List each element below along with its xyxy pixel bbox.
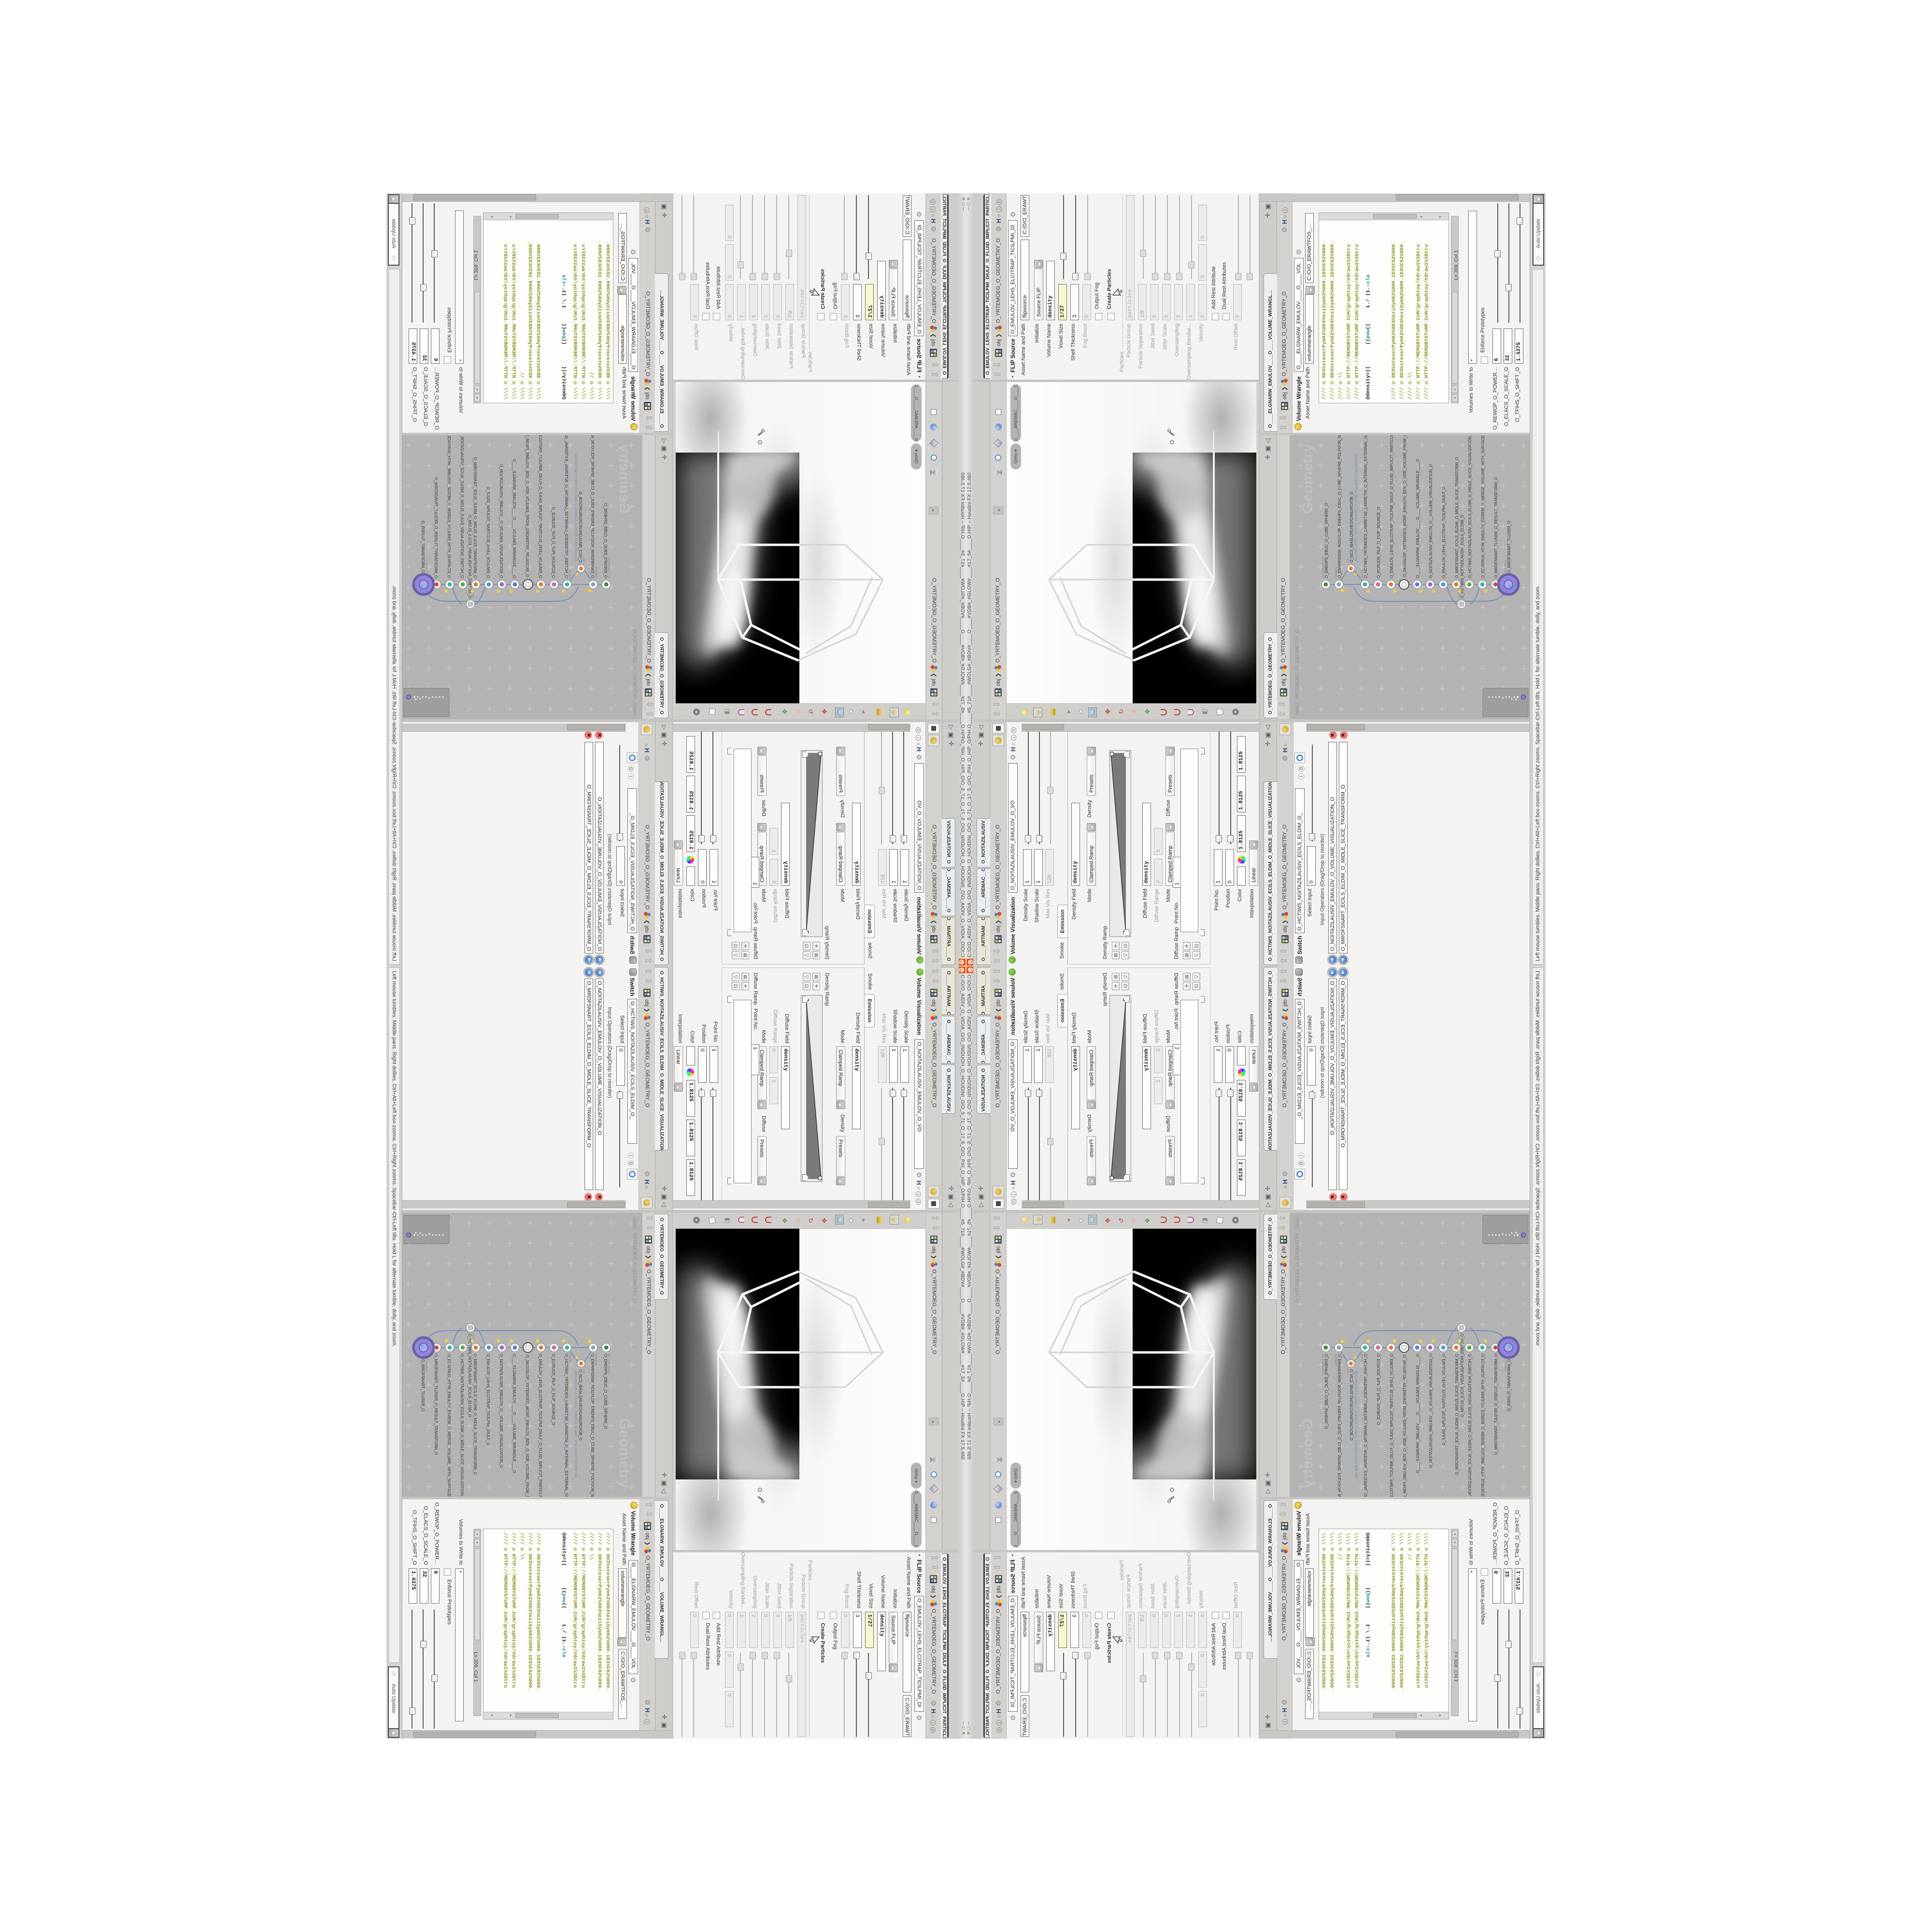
svg-text:Geometry: Geometry xyxy=(616,443,633,513)
svg-text:O_MROFSNART_TLUSER_O: O_MROFSNART_TLUSER_O xyxy=(421,521,425,573)
svg-text:O_MROFSNART_ECILS_ELDIM_O_MIDL: O_MROFSNART_ECILS_ELDIM_O_MIDLE_SLICE_TR… xyxy=(473,457,477,578)
svg-text:O_ECAFRUS_HTIW_EMULOV_EGREM_O_: O_ECAFRUS_HTIW_EMULOV_EGREM_O_MERGE_VOLU… xyxy=(447,1354,451,1497)
svg-text:O_HCTIWS_NOITAZILAUSIV_ECILS_E: O_HCTIWS_NOITAZILAUSIV_ECILS_ELDIM_O xyxy=(1460,515,1464,598)
svg-text:_BDO.WD3.PETS.TROP1.0_SGNREG_O: _BDO.WD3.PETS.TROP1.0_SGNREG_O.GENF_O.SL… xyxy=(574,452,577,563)
svg-text:O_EMULOV_LEHS_ELCITRAP_TICILPM: O_EMULOV_LEHS_ELCITRAP_TICILPMI_DIULF_O_… xyxy=(1390,1354,1394,1497)
svg-text:O_HCTIWS_YRTEMOEG_LANRETXE_LAN: O_HCTIWS_YRTEMOEG_LANRETXE_LANRETNI_O_IN… xyxy=(1364,435,1368,578)
svg-text:O_EREHPS_EBUC_O_CUBE_SPHERE_O: O_EREHPS_EBUC_O_CUBE_SPHERE_O xyxy=(1324,503,1329,578)
svg-text:O_EMULOV_LEHS_ELCITRAP_TICILPM: O_EMULOV_LEHS_ELCITRAP_TICILPMI_DIULF_O_… xyxy=(538,1354,542,1497)
svg-text:O_NOITAZILAUSIV_EMULOV_O__VOLU: O_NOITAZILAUSIV_EMULOV_O__VOLUME_VISUALI… xyxy=(1429,464,1433,578)
svg-text:O_HCTIWS_NOITAZILAUSIV_ECILS_E: O_HCTIWS_NOITAZILAUSIV_ECILS_ELDIM_O_MID… xyxy=(460,1354,464,1497)
svg-text:O_EREHPS_EBUC_O_CUBE_SPHERE_O: O_EREHPS_EBUC_O_CUBE_SPHERE_O xyxy=(603,503,608,578)
svg-text:O_HCTIWS_NOITAZILAUSIV_ECILS_E: O_HCTIWS_NOITAZILAUSIV_ECILS_ELDIM_O xyxy=(468,1334,472,1417)
svg-text:O_ECAFRUS_HTIW_EMULOV_EGREM_O_: O_ECAFRUS_HTIW_EMULOV_EGREM_O_MERGE_VOLU… xyxy=(1481,1354,1485,1497)
svg-text:O____ELGNARW_EMULOV____O____VO: O____ELGNARW_EMULOV____O____VOLUME_WRANG… xyxy=(1416,1354,1420,1473)
svg-text:O_HCTIWS_YRTEMOEG_LANRETXE_LAN: O_HCTIWS_YRTEMOEG_LANRETXE_LANRETNI_O_IN… xyxy=(564,1354,568,1497)
svg-text:O_HCTIWS_NOITAZILAUSIV_ECILS_E: O_HCTIWS_NOITAZILAUSIV_ECILS_ELDIM_O_MID… xyxy=(1468,1354,1472,1497)
svg-text:O_NC3_/BASLQRU/EO/GANJ/RO/OB_D: O_NC3_/BASLQRU/EO/GANJ/RO/OB_D xyxy=(578,492,582,563)
svg-text:O_NC3_/BASLQRU/EO/GANJ/RO/OB_D: O_NC3_/BASLQRU/EO/GANJ/RO/OB_D xyxy=(1350,1369,1354,1440)
svg-text:O_SKOGILOP_YRTEMOEG_MORF_EMULO: O_SKOGILOP_YRTEMOEG_MORF_EMULOV_BDV_O_VD… xyxy=(525,1355,529,1497)
svg-text:O_NOITAZILAUSIV_EMULOV_O__VOLU: O_NOITAZILAUSIV_EMULOV_O__VOLUME_VISUALI… xyxy=(499,1354,503,1468)
svg-text:O_NC3_/BASLQRU/EO/GANJ/RO/OB_D: O_NC3_/BASLQRU/EO/GANJ/RO/OB_D xyxy=(578,1369,582,1440)
svg-text:O_EMULOV_LEHS_ELCITRAP_TICILPM: O_EMULOV_LEHS_ELCITRAP_TICILPMI_DIULF_O_… xyxy=(538,435,542,578)
svg-text:O_ECRUOS_PILF_O_FLIP_SOURCE_O: O_ECRUOS_PILF_O_FLIP_SOURCE_O xyxy=(551,507,555,578)
svg-text:_BDO.WD3.PETS.TROP1.0_SGNREG_O: _BDO.WD3.PETS.TROP1.0_SGNREG_O.GENF_O.SL… xyxy=(1355,1369,1358,1480)
svg-text:/obj/O_YRTEMOEG_O_GEOMETRY_O: /obj/O_YRTEMOEG_O_GEOMETRY_O xyxy=(1295,1216,1300,1303)
svg-text:O_ECAFRUS_HTIW_EMULOV_EGREM_O_: O_ECAFRUS_HTIW_EMULOV_EGREM_O_MERGE_VOLU… xyxy=(447,435,451,578)
svg-text:/obj/O_YRTEMOEG_O_GEOMETRY_O: /obj/O_YRTEMOEG_O_GEOMETRY_O xyxy=(632,1216,637,1303)
svg-text:Geometry: Geometry xyxy=(1299,1418,1316,1488)
svg-text:O_EREHPS_EBUC_O_CUBE_SPHERE_O: O_EREHPS_EBUC_O_CUBE_SPHERE_O xyxy=(603,1354,608,1429)
svg-text:O_MROFSNART_TLUSER_O_RESULT_TR: O_MROFSNART_TLUSER_O_RESULT_TRANSFORM_O xyxy=(1494,477,1498,578)
svg-text:O_HCTIWS_NOITAZILAUSIV_ECILS_E: O_HCTIWS_NOITAZILAUSIV_ECILS_ELDIM_O xyxy=(1460,1334,1464,1417)
svg-text:O_HCTIWS_YRTEMOEG_LANRETXE_LAN: O_HCTIWS_YRTEMOEG_LANRETXE_LANRETNI_O_IN… xyxy=(564,435,568,578)
svg-text:O_EMULOV_LEHS_ELCITRAP_TICILPM: O_EMULOV_LEHS_ELCITRAP_TICILPMI_DIULF_O xyxy=(1442,1354,1446,1446)
svg-text:O_EMARFERIW_NOGYLOP_EREHPS_EBU: O_EMARFERIW_NOGYLOP_EREHPS_EBUC_O_CUBE_S… xyxy=(590,1354,595,1497)
svg-text:O_HCTIWS_YRTEMOEG_LANRETXE_LAN: O_HCTIWS_YRTEMOEG_LANRETXE_LANRETNI_O_IN… xyxy=(1364,1354,1368,1497)
svg-text:O_HCTIWS_NOITAZILAUSIV_ECILS_E: O_HCTIWS_NOITAZILAUSIV_ECILS_ELDIM_O_MID… xyxy=(1468,435,1472,578)
svg-text:O_ECAFRUS_HTIW_EMULOV_EGREM_O_: O_ECAFRUS_HTIW_EMULOV_EGREM_O_MERGE_VOLU… xyxy=(1481,435,1485,578)
svg-text:O_NC3_/BASLQRU/EO/GANJ/RO/OB_D: O_NC3_/BASLQRU/EO/GANJ/RO/OB_D xyxy=(1350,492,1354,563)
svg-text:O_EMARFERIW_NOGYLOP_EREHPS_EBU: O_EMARFERIW_NOGYLOP_EREHPS_EBUC_O_CUBE_S… xyxy=(1337,435,1342,578)
svg-text:_BDO.WD3.PETS.TROP1.0_SGNREG_O: _BDO.WD3.PETS.TROP1.0_SGNREG_O.GENF_O.SL… xyxy=(574,1369,577,1480)
svg-text:O_HCTIWS_NOITAZILAUSIV_ECILS_E: O_HCTIWS_NOITAZILAUSIV_ECILS_ELDIM_O_MID… xyxy=(460,435,464,578)
svg-text:O_EMULOV_LEHS_ELCITRAP_TICILPM: O_EMULOV_LEHS_ELCITRAP_TICILPMI_DIULF_O xyxy=(486,1354,490,1446)
svg-text:Geometry: Geometry xyxy=(616,1418,633,1488)
svg-text:O_ECRUOS_PILF_O_FLIP_SOURCE_O: O_ECRUOS_PILF_O_FLIP_SOURCE_O xyxy=(551,1354,555,1425)
svg-text:O_NOITAZILAUSIV_EMULOV_O__VOLU: O_NOITAZILAUSIV_EMULOV_O__VOLUME_VISUALI… xyxy=(1429,1354,1433,1468)
svg-text:O____ELGNARW_EMULOV____O____VO: O____ELGNARW_EMULOV____O____VOLUME_WRANG… xyxy=(512,1354,516,1473)
svg-text:O_EREHPS_EBUC_O_CUBE_SPHERE_O: O_EREHPS_EBUC_O_CUBE_SPHERE_O xyxy=(1324,1354,1329,1429)
svg-text:O_MROFSNART_ECILS_ELDIM_O_MIDL: O_MROFSNART_ECILS_ELDIM_O_MIDLE_SLICE_TR… xyxy=(473,1354,477,1475)
svg-text:O_EMULOV_LEHS_ELCITRAP_TICILPM: O_EMULOV_LEHS_ELCITRAP_TICILPMI_DIULF_O xyxy=(486,486,490,578)
svg-text:O_EMARFERIW_NOGYLOP_EREHPS_EBU: O_EMARFERIW_NOGYLOP_EREHPS_EBUC_O_CUBE_S… xyxy=(590,435,595,578)
svg-text:O____ELGNARW_EMULOV____O____VO: O____ELGNARW_EMULOV____O____VOLUME_WRANG… xyxy=(1416,459,1420,578)
svg-text:O_EMARFERIW_NOGYLOP_EREHPS_EBU: O_EMARFERIW_NOGYLOP_EREHPS_EBUC_O_CUBE_S… xyxy=(1337,1354,1342,1497)
svg-text:O____ELGNARW_EMULOV____O____VO: O____ELGNARW_EMULOV____O____VOLUME_WRANG… xyxy=(512,459,516,578)
svg-text:/obj/O_YRTEMOEG_O_GEOMETRY_O: /obj/O_YRTEMOEG_O_GEOMETRY_O xyxy=(1295,629,1300,716)
svg-text:O_MROFSNART_TLUSER_O_RESULT_TR: O_MROFSNART_TLUSER_O_RESULT_TRANSFORM_O xyxy=(1494,1354,1498,1455)
svg-text:O_MROFSNART_TLUSER_O_RESULT_TR: O_MROFSNART_TLUSER_O_RESULT_TRANSFORM_O xyxy=(434,477,438,578)
svg-text:O_MROFSNART_TLUSER_O: O_MROFSNART_TLUSER_O xyxy=(421,1359,425,1411)
svg-text:Geometry: Geometry xyxy=(1299,443,1316,513)
svg-text:O_MROFSNART_TLUSER_O: O_MROFSNART_TLUSER_O xyxy=(1507,1359,1511,1411)
svg-text:O_MROFSNART_TLUSER_O: O_MROFSNART_TLUSER_O xyxy=(1507,521,1511,573)
svg-text:O_MROFSNART_TLUSER_O_RESULT_TR: O_MROFSNART_TLUSER_O_RESULT_TRANSFORM_O xyxy=(434,1354,438,1455)
svg-text:O_EMULOV_LEHS_ELCITRAP_TICILPM: O_EMULOV_LEHS_ELCITRAP_TICILPMI_DIULF_O xyxy=(1442,486,1446,578)
svg-text:O_MROFSNART_ECILS_ELDIM_O_MIDL: O_MROFSNART_ECILS_ELDIM_O_MIDLE_SLICE_TR… xyxy=(1455,457,1459,578)
svg-text:O_ECRUOS_PILF_O_FLIP_SOURCE_O: O_ECRUOS_PILF_O_FLIP_SOURCE_O xyxy=(1377,1354,1381,1425)
svg-text:_BDO.WD3.PETS.TROP1.0_SGNREG_O: _BDO.WD3.PETS.TROP1.0_SGNREG_O.GENF_O.SL… xyxy=(1355,452,1358,563)
svg-text:O_MROFSNART_ECILS_ELDIM_O_MIDL: O_MROFSNART_ECILS_ELDIM_O_MIDLE_SLICE_TR… xyxy=(1455,1354,1459,1475)
svg-text:O_SKOGILOP_YRTEMOEG_MORF_EMULO: O_SKOGILOP_YRTEMOEG_MORF_EMULOV_BDV_O_VD… xyxy=(1403,1355,1407,1497)
svg-text:O_SKOGILOP_YRTEMOEG_MORF_EMULO: O_SKOGILOP_YRTEMOEG_MORF_EMULOV_BDV_O_VD… xyxy=(1403,435,1407,577)
svg-text:O_HCTIWS_NOITAZILAUSIV_ECILS_E: O_HCTIWS_NOITAZILAUSIV_ECILS_ELDIM_O xyxy=(468,515,472,598)
svg-text:O_EMULOV_LEHS_ELCITRAP_TICILPM: O_EMULOV_LEHS_ELCITRAP_TICILPMI_DIULF_O_… xyxy=(1390,435,1394,578)
svg-text:O_SKOGILOP_YRTEMOEG_MORF_EMULO: O_SKOGILOP_YRTEMOEG_MORF_EMULOV_BDV_O_VD… xyxy=(525,435,529,577)
svg-text:/obj/O_YRTEMOEG_O_GEOMETRY_O: /obj/O_YRTEMOEG_O_GEOMETRY_O xyxy=(632,629,637,716)
svg-text:O_NOITAZILAUSIV_EMULOV_O__VOLU: O_NOITAZILAUSIV_EMULOV_O__VOLUME_VISUALI… xyxy=(499,464,503,578)
svg-text:O_ECRUOS_PILF_O_FLIP_SOURCE_O: O_ECRUOS_PILF_O_FLIP_SOURCE_O xyxy=(1377,507,1381,578)
